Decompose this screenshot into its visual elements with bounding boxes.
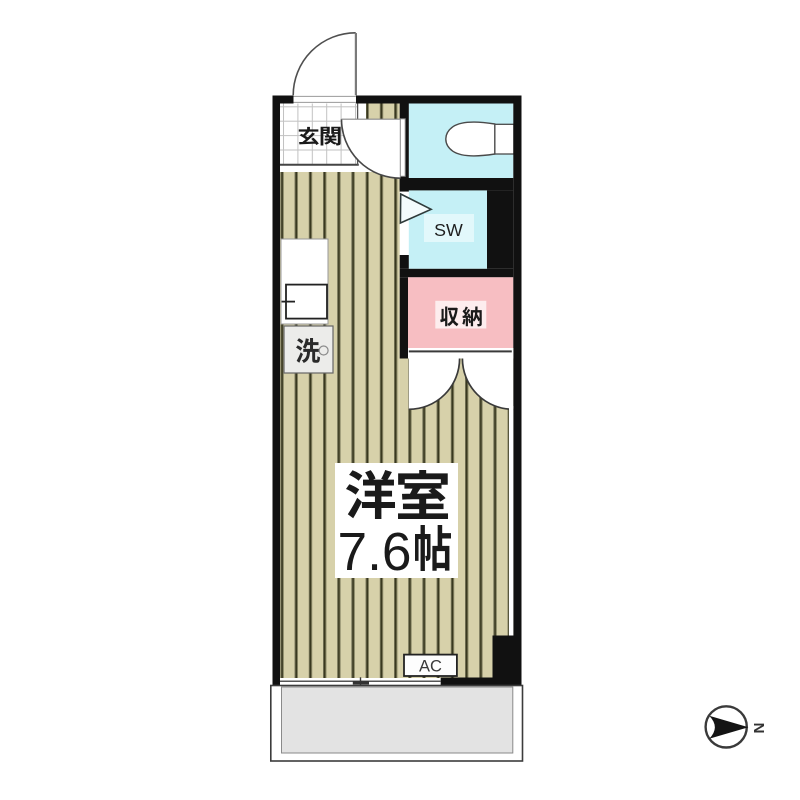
svg-text:7.6: 7.6 — [338, 523, 412, 582]
svg-text:N: N — [750, 723, 767, 734]
svg-text:AC: AC — [419, 658, 442, 676]
svg-text:SW: SW — [434, 220, 463, 240]
